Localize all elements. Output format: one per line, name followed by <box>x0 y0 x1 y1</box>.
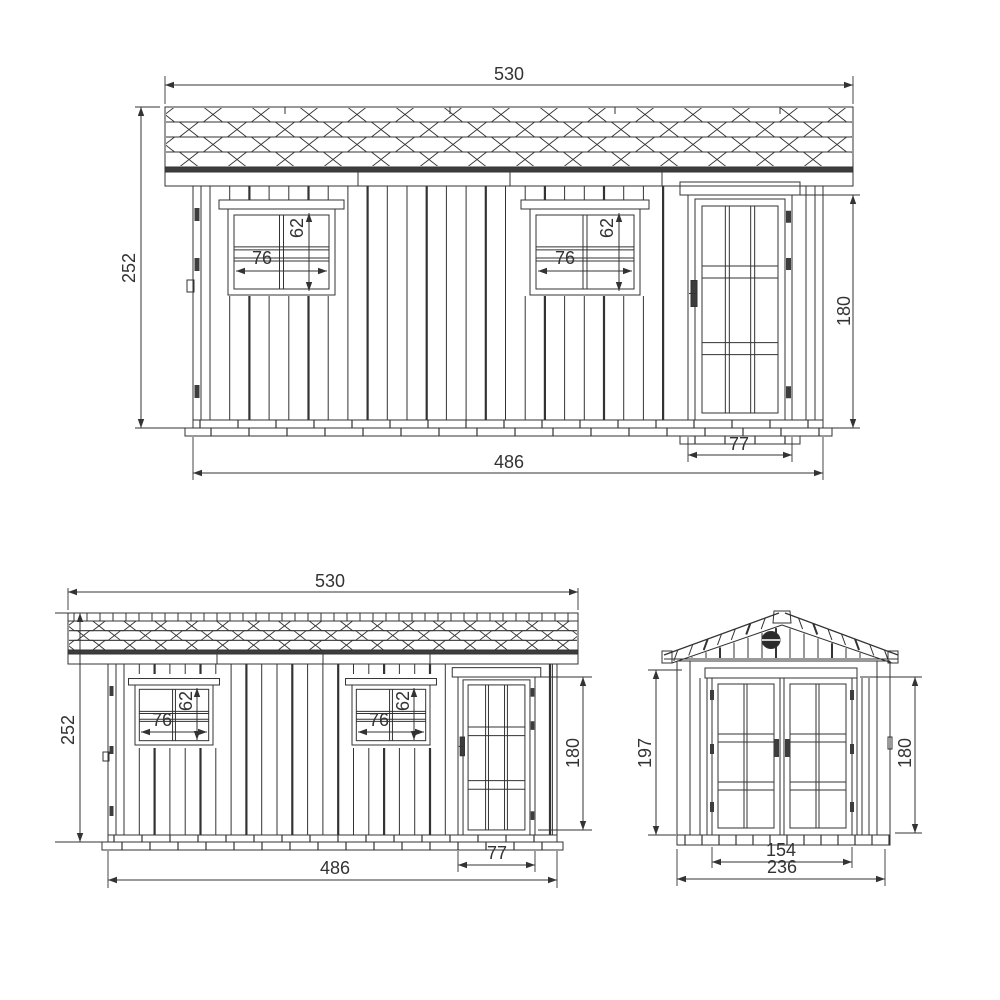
drawing-stage: 530 252 62 76 62 76 77 180 486 530 252 6… <box>0 0 1000 1000</box>
dim-label-door-width: 77 <box>729 434 749 454</box>
shed-technical-drawing: 530 252 62 76 62 76 77 180 486 530 252 6… <box>0 0 1000 1000</box>
dim-label-wall-height: 252 <box>58 715 78 745</box>
dim-label-door-width: 77 <box>487 843 507 863</box>
dim-label-window1-height: 62 <box>287 218 307 238</box>
dim-label-door-height: 180 <box>834 296 854 326</box>
dim-label-window2-width: 76 <box>369 710 389 730</box>
dim-label-base-width: 486 <box>320 858 350 878</box>
dim-label-overall-width: 236 <box>767 857 797 877</box>
dim-label-door-height: 180 <box>563 738 583 768</box>
dim-label-window2-height: 62 <box>597 218 617 238</box>
dim-label-window2-width: 76 <box>555 248 575 268</box>
view-front-elevation-large: 530 252 62 76 62 76 77 180 486 <box>117 64 885 480</box>
dim-label-window1-height: 62 <box>176 691 196 711</box>
dim-label-wall-height: 252 <box>119 253 139 283</box>
dim-label-base-width: 486 <box>494 452 524 472</box>
dim-label-window2-height: 62 <box>393 691 413 711</box>
view-front-elevation-small: 530 252 62 76 62 76 77 180 486 <box>37 571 594 888</box>
view-gable-end: 197 180 154 236 <box>635 611 922 886</box>
dim-label-window1-width: 76 <box>152 710 172 730</box>
dim-label-window1-width: 76 <box>252 248 272 268</box>
front-large-geometry <box>117 76 885 480</box>
dim-label-roof-width: 530 <box>494 64 524 84</box>
front-small-geometry <box>37 588 594 888</box>
dim-label-door-height: 180 <box>895 738 915 768</box>
dim-label-roof-width: 530 <box>315 571 345 591</box>
dim-label-wall-height: 197 <box>635 738 655 768</box>
